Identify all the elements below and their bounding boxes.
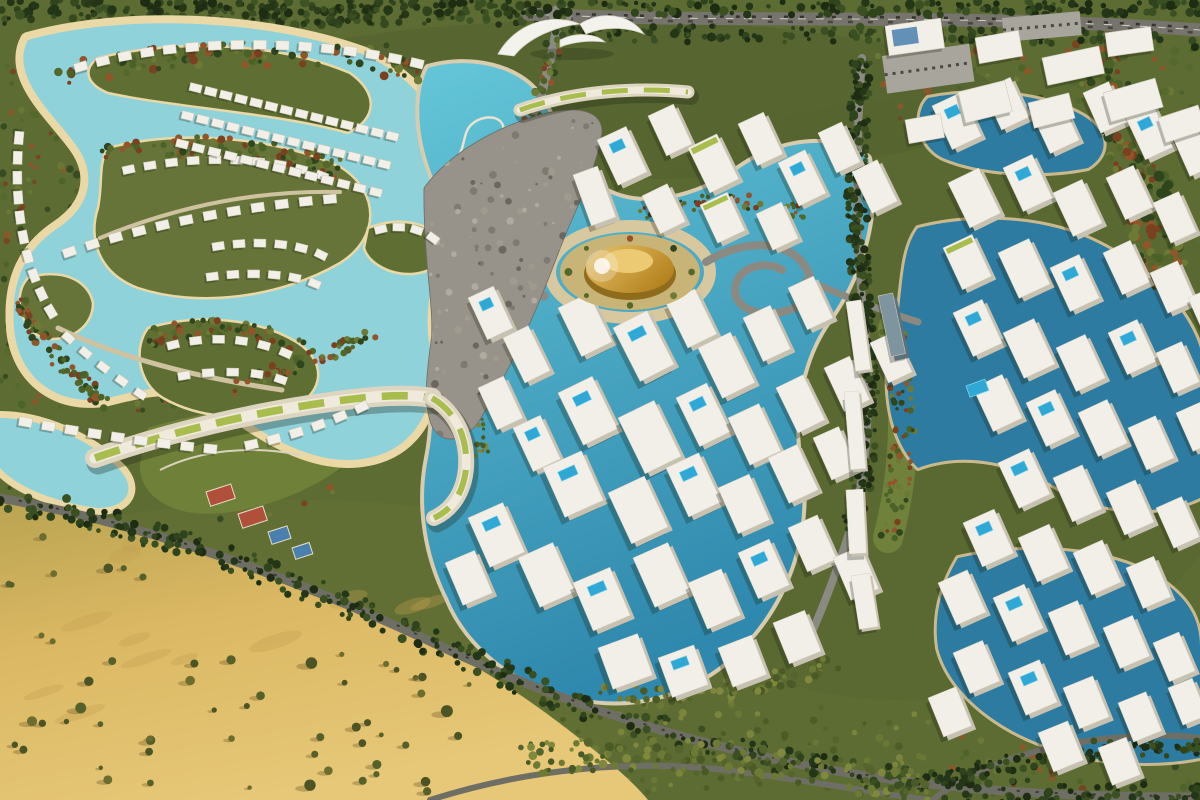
villa xyxy=(231,239,246,250)
villa xyxy=(187,336,202,348)
villa xyxy=(211,335,225,345)
villa xyxy=(163,158,178,169)
villa xyxy=(321,194,337,206)
apartment-block xyxy=(844,489,869,560)
villa xyxy=(210,241,225,253)
villa xyxy=(200,368,215,379)
villa xyxy=(297,196,313,209)
villa xyxy=(229,40,244,51)
villa xyxy=(11,169,22,184)
villa xyxy=(273,199,289,212)
villa xyxy=(161,44,177,57)
villa xyxy=(251,40,266,51)
villa xyxy=(11,189,23,205)
villa xyxy=(185,156,200,167)
villa xyxy=(246,270,260,280)
landmark-golden-dome xyxy=(560,234,700,310)
villa xyxy=(249,202,265,215)
masterplan-svg xyxy=(0,0,1200,800)
villa xyxy=(183,42,199,54)
villa xyxy=(138,47,154,60)
masterplan-aerial-render xyxy=(0,0,1200,800)
villa xyxy=(12,208,25,224)
rooftop-panel xyxy=(892,27,919,47)
villa xyxy=(225,270,240,281)
villa xyxy=(206,41,222,53)
villa xyxy=(204,272,219,284)
